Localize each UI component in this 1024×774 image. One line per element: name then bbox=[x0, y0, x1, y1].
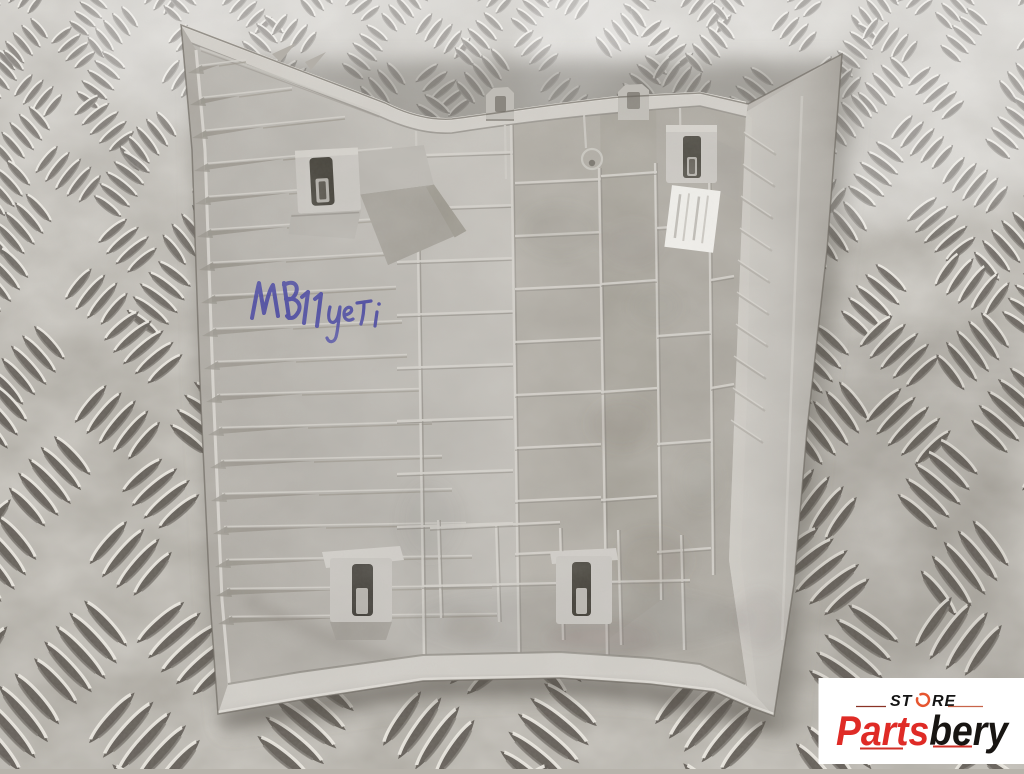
svg-text:Partsbery: Partsbery bbox=[836, 707, 1010, 754]
